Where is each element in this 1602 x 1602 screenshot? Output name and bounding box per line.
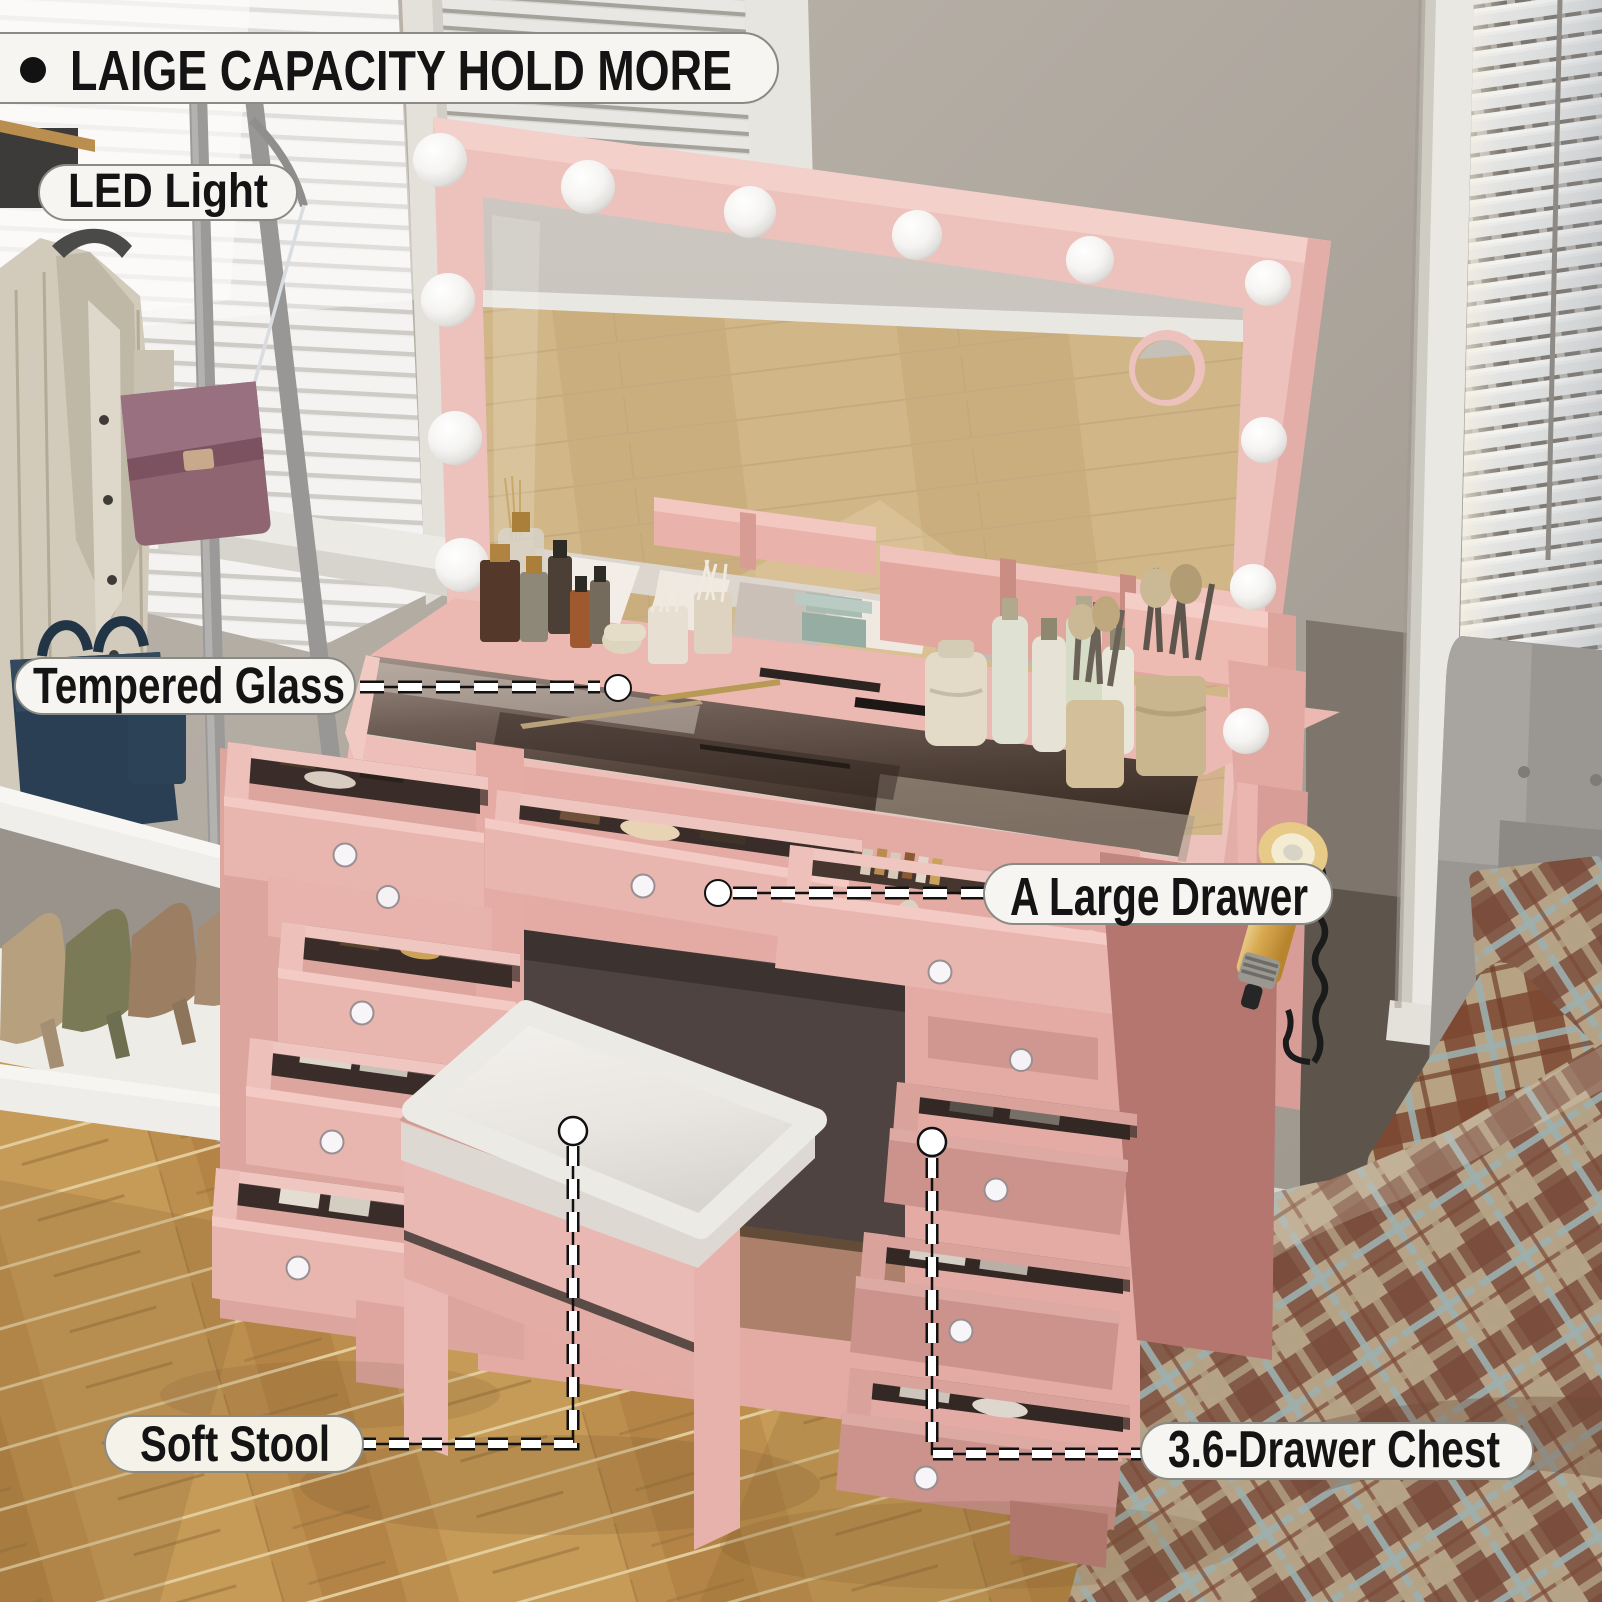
svg-text:A Large Drawer: A Large Drawer: [1010, 867, 1308, 927]
svg-text:3.6-Drawer Chest: 3.6-Drawer Chest: [1168, 1421, 1500, 1479]
svg-text:Soft Stool: Soft Stool: [140, 1416, 330, 1472]
svg-text:Tempered Glass: Tempered Glass: [33, 657, 345, 714]
svg-text:LED Light: LED Light: [68, 165, 268, 218]
svg-text:LAIGE CAPACITY HOLD MORE: LAIGE CAPACITY HOLD MORE: [70, 39, 732, 103]
